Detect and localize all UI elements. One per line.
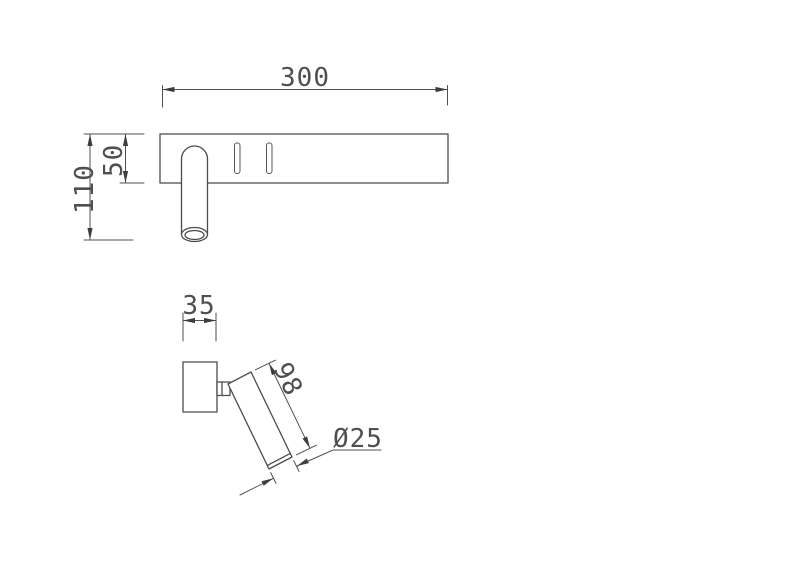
- dim-dia25-arrow-right: [297, 459, 309, 467]
- dim-98-label: 98: [267, 358, 309, 401]
- dim-300-label: 300: [280, 63, 330, 93]
- dim-110-label: 110: [70, 164, 100, 214]
- technical-drawing-page: 300 50 110: [0, 0, 800, 565]
- dim-110-arrow-bottom: [87, 228, 92, 240]
- dim-300-arrow-left: [163, 87, 175, 92]
- side-view: 35 98 Ø25: [182, 291, 383, 495]
- tube-body-fill: [182, 146, 208, 234]
- dim-dia25-arrow-left: [262, 478, 274, 486]
- dim-98-arrow-bottom: [303, 436, 311, 448]
- dim-bar-length: 300: [163, 63, 448, 107]
- dim-300-arrow-right: [436, 87, 448, 92]
- dim-dia25-label: Ø25: [333, 424, 383, 454]
- dim-98-ext-bottom: [297, 445, 317, 455]
- dim-110-arrow-top: [87, 134, 92, 146]
- dim-mount-width: 35: [182, 291, 216, 341]
- dim-35-label: 35: [182, 291, 215, 321]
- front-view: 300 50 110: [70, 63, 448, 242]
- dim-50-label: 50: [99, 144, 129, 177]
- switch-slot-1: [235, 143, 241, 174]
- switch-slot-2: [267, 143, 273, 174]
- drawing-canvas: 300 50 110: [0, 0, 800, 565]
- mount-block: [183, 362, 217, 412]
